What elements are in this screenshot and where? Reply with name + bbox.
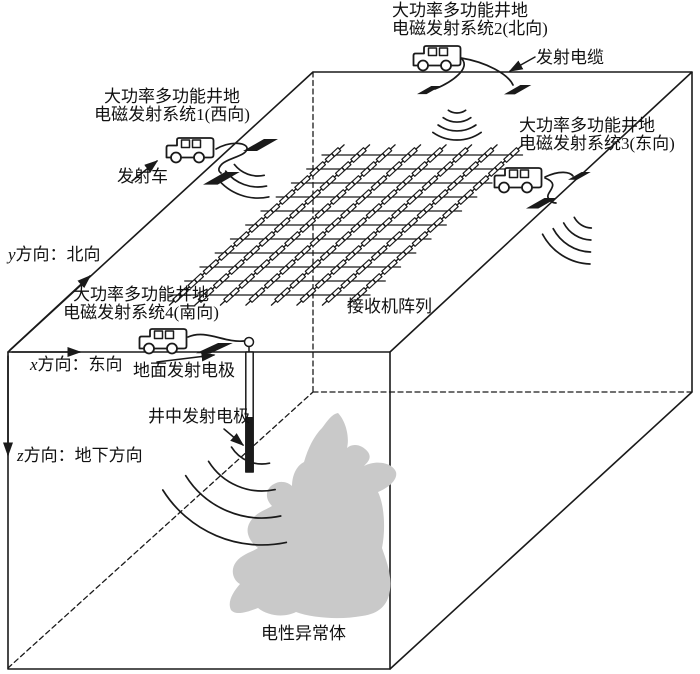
right-face-edges	[390, 72, 692, 669]
label-system4: 大功率多功能井地电磁发射系统4(南向)	[52, 286, 230, 321]
label-borehole-electrode: 井中发射电极	[148, 408, 250, 426]
borehole	[245, 338, 254, 473]
label-transmit-cable: 发射电缆	[536, 49, 604, 67]
electrode-sys3-b	[526, 198, 557, 209]
truck-system2	[414, 46, 461, 71]
cable-system4	[188, 335, 244, 342]
label-receiver-array: 接收机阵列	[347, 298, 432, 316]
label-x-axis: x方向：东向	[30, 356, 123, 374]
figure-canvas: 大功率多功能井地电磁发射系统1(西向) 大功率多功能井地电磁发射系统2(北向) …	[0, 0, 700, 674]
truck-system3	[495, 168, 542, 193]
label-system3: 大功率多功能井地电磁发射系统3(东向)	[519, 117, 675, 152]
electrode-sys3-a	[568, 172, 591, 180]
label-transmit-vehicle: 发射车	[117, 168, 168, 186]
cable-pointer-arrow	[510, 57, 535, 71]
truck-system4	[140, 329, 187, 354]
electrode-sys2-b	[504, 85, 531, 94]
wellhead-pulley	[245, 338, 254, 347]
label-system1: 大功率多功能井地电磁发射系统1(西向)	[82, 88, 262, 123]
receiver-array-grid	[169, 145, 522, 305]
electrode-sys1-a	[243, 139, 278, 151]
anomaly-body-shape	[230, 413, 397, 618]
label-y-axis: y方向：北向	[8, 246, 101, 264]
label-z-axis: z方向：地下方向	[17, 447, 143, 465]
label-surface-electrode: 地面发射电极	[133, 362, 235, 380]
electrode-sys2-a	[417, 86, 441, 94]
label-anomaly-body: 电性异常体	[261, 625, 346, 643]
borehole-electrode-pointer-arrow	[224, 429, 243, 445]
truck-system1	[167, 138, 214, 163]
label-system2: 大功率多功能井地电磁发射系统2(北向)	[392, 2, 548, 37]
